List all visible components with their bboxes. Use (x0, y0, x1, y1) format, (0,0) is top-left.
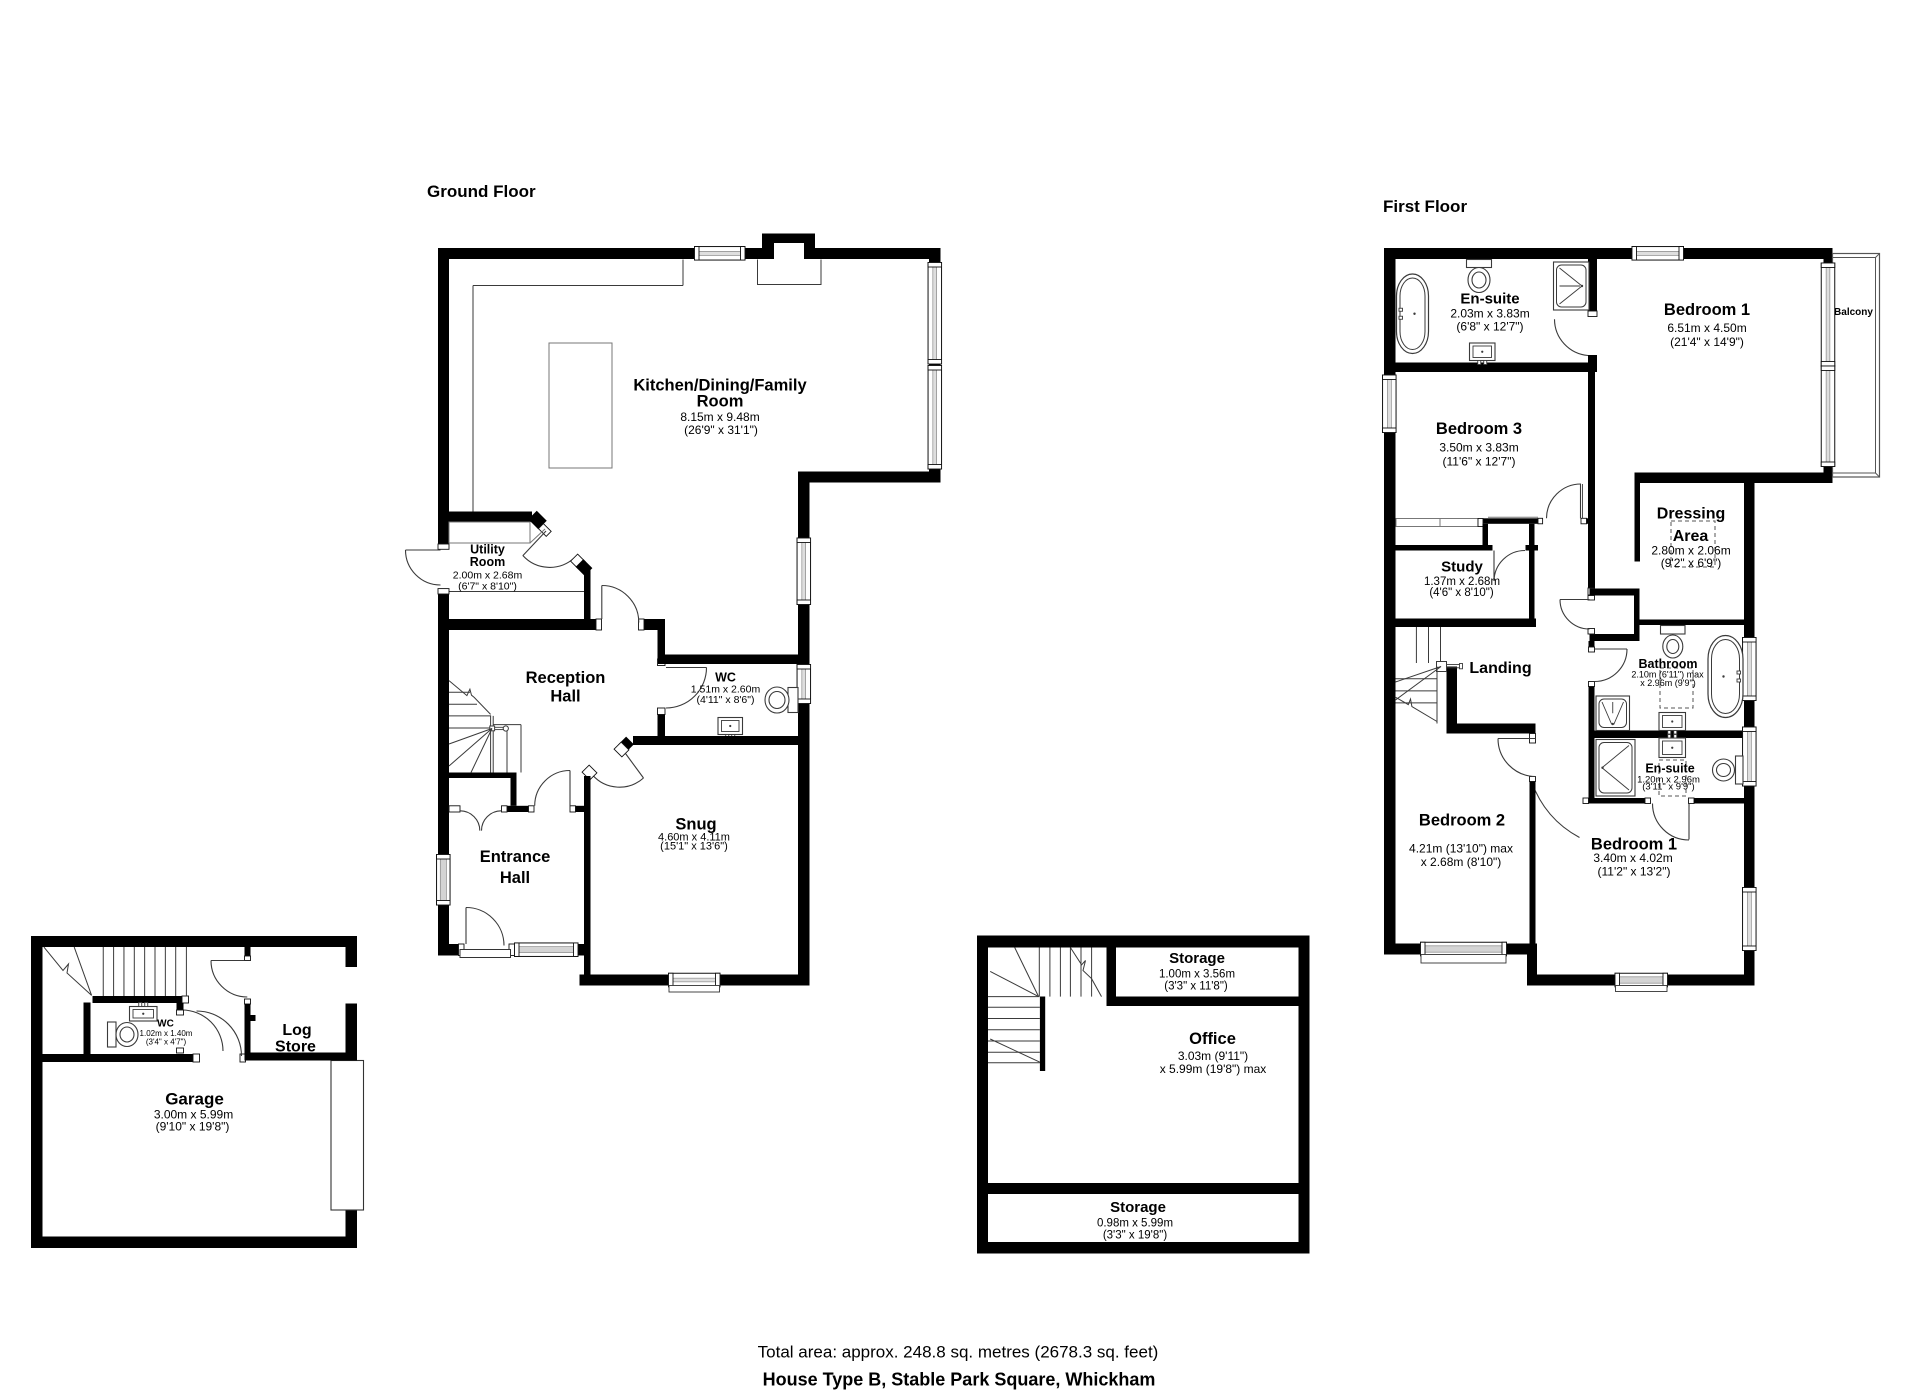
svg-text:2.03m x 3.83m: 2.03m x 3.83m (1450, 307, 1529, 321)
svg-text:Total area: approx. 248.8 sq.: Total area: approx. 248.8 sq. metres (26… (758, 1343, 1159, 1362)
svg-text:1.00m x 3.56m: 1.00m x 3.56m (1159, 969, 1235, 981)
svg-text:Storage: Storage (1169, 950, 1225, 967)
svg-text:Bedroom 3: Bedroom 3 (1436, 420, 1522, 438)
svg-text:(3'3" x 19'8"): (3'3" x 19'8") (1103, 1230, 1168, 1242)
svg-text:(15'1" x 13'6"): (15'1" x 13'6") (660, 841, 728, 853)
svg-text:Bedroom 2: Bedroom 2 (1419, 812, 1505, 830)
svg-text:WC: WC (715, 671, 736, 685)
svg-text:0.98m x 5.99m: 0.98m x 5.99m (1097, 1218, 1173, 1230)
svg-text:(3'3" x 11'8"): (3'3" x 11'8") (1164, 981, 1228, 993)
svg-text:Study: Study (1441, 559, 1483, 576)
svg-text:Balcony: Balcony (1834, 307, 1873, 318)
svg-text:Room: Room (697, 393, 744, 411)
svg-text:3.03m (9'11"): 3.03m (9'11") (1178, 1049, 1248, 1063)
svg-text:Hall: Hall (550, 688, 580, 706)
svg-text:Area: Area (1673, 528, 1709, 545)
svg-text:x 2.68m (8'10"): x 2.68m (8'10") (1421, 855, 1502, 869)
svg-text:Ground Floor: Ground Floor (427, 182, 536, 201)
svg-text:Bedroom 1: Bedroom 1 (1664, 301, 1750, 319)
svg-text:Storage: Storage (1110, 1199, 1166, 1216)
svg-text:Office: Office (1189, 1030, 1236, 1048)
svg-text:First Floor: First Floor (1383, 197, 1467, 216)
svg-text:En-suite: En-suite (1460, 291, 1519, 308)
svg-text:WC: WC (157, 1019, 174, 1030)
svg-text:(3'11" x 9'9"): (3'11" x 9'9") (1642, 782, 1694, 793)
svg-text:x 5.99m (19'8") max: x 5.99m (19'8") max (1160, 1062, 1267, 1076)
svg-text:Log: Log (282, 1022, 311, 1039)
svg-text:(6'7" x 8'10"): (6'7" x 8'10") (458, 581, 517, 593)
svg-text:(21'4" x 14'9"): (21'4" x 14'9") (1670, 335, 1744, 349)
svg-text:(4'6" x 8'10"): (4'6" x 8'10") (1429, 587, 1494, 599)
svg-text:3.40m x 4.02m: 3.40m x 4.02m (1593, 851, 1672, 865)
svg-text:4.21m (13'10") max: 4.21m (13'10") max (1409, 842, 1513, 856)
svg-text:Landing: Landing (1469, 660, 1531, 677)
svg-text:Hall: Hall (500, 869, 530, 887)
svg-text:(4'11" x 8'6"): (4'11" x 8'6") (697, 694, 755, 706)
svg-text:House Type B, Stable Park Squa: House Type B, Stable Park Square, Whickh… (763, 1370, 1156, 1390)
svg-text:x 2.96m (9'9"): x 2.96m (9'9") (1640, 678, 1695, 688)
svg-text:Reception: Reception (526, 669, 606, 687)
svg-text:Room: Room (470, 555, 505, 569)
svg-text:(11'2" x 13'2"): (11'2" x 13'2") (1598, 865, 1671, 879)
svg-text:(9'2" x 6'9"): (9'2" x 6'9") (1661, 556, 1721, 570)
svg-text:(3'4" x 4'7"): (3'4" x 4'7") (146, 1038, 187, 1047)
svg-text:(11'6" x 12'7"): (11'6" x 12'7") (1443, 455, 1516, 469)
svg-text:(6'8" x 12'7"): (6'8" x 12'7") (1456, 320, 1523, 334)
svg-text:Garage: Garage (165, 1090, 224, 1109)
svg-text:Entrance: Entrance (480, 848, 551, 866)
svg-text:8.15m x 9.48m: 8.15m x 9.48m (680, 410, 759, 424)
svg-text:(9'10" x 19'8"): (9'10" x 19'8") (156, 1120, 230, 1134)
svg-text:6.51m x 4.50m: 6.51m x 4.50m (1667, 321, 1746, 335)
svg-text:3.50m x 3.83m: 3.50m x 3.83m (1439, 441, 1518, 455)
svg-text:(26'9" x 31'1"): (26'9" x 31'1") (684, 423, 758, 437)
svg-text:Store: Store (275, 1039, 316, 1056)
svg-text:Dressing: Dressing (1657, 506, 1725, 523)
svg-text:En-suite: En-suite (1645, 762, 1694, 776)
